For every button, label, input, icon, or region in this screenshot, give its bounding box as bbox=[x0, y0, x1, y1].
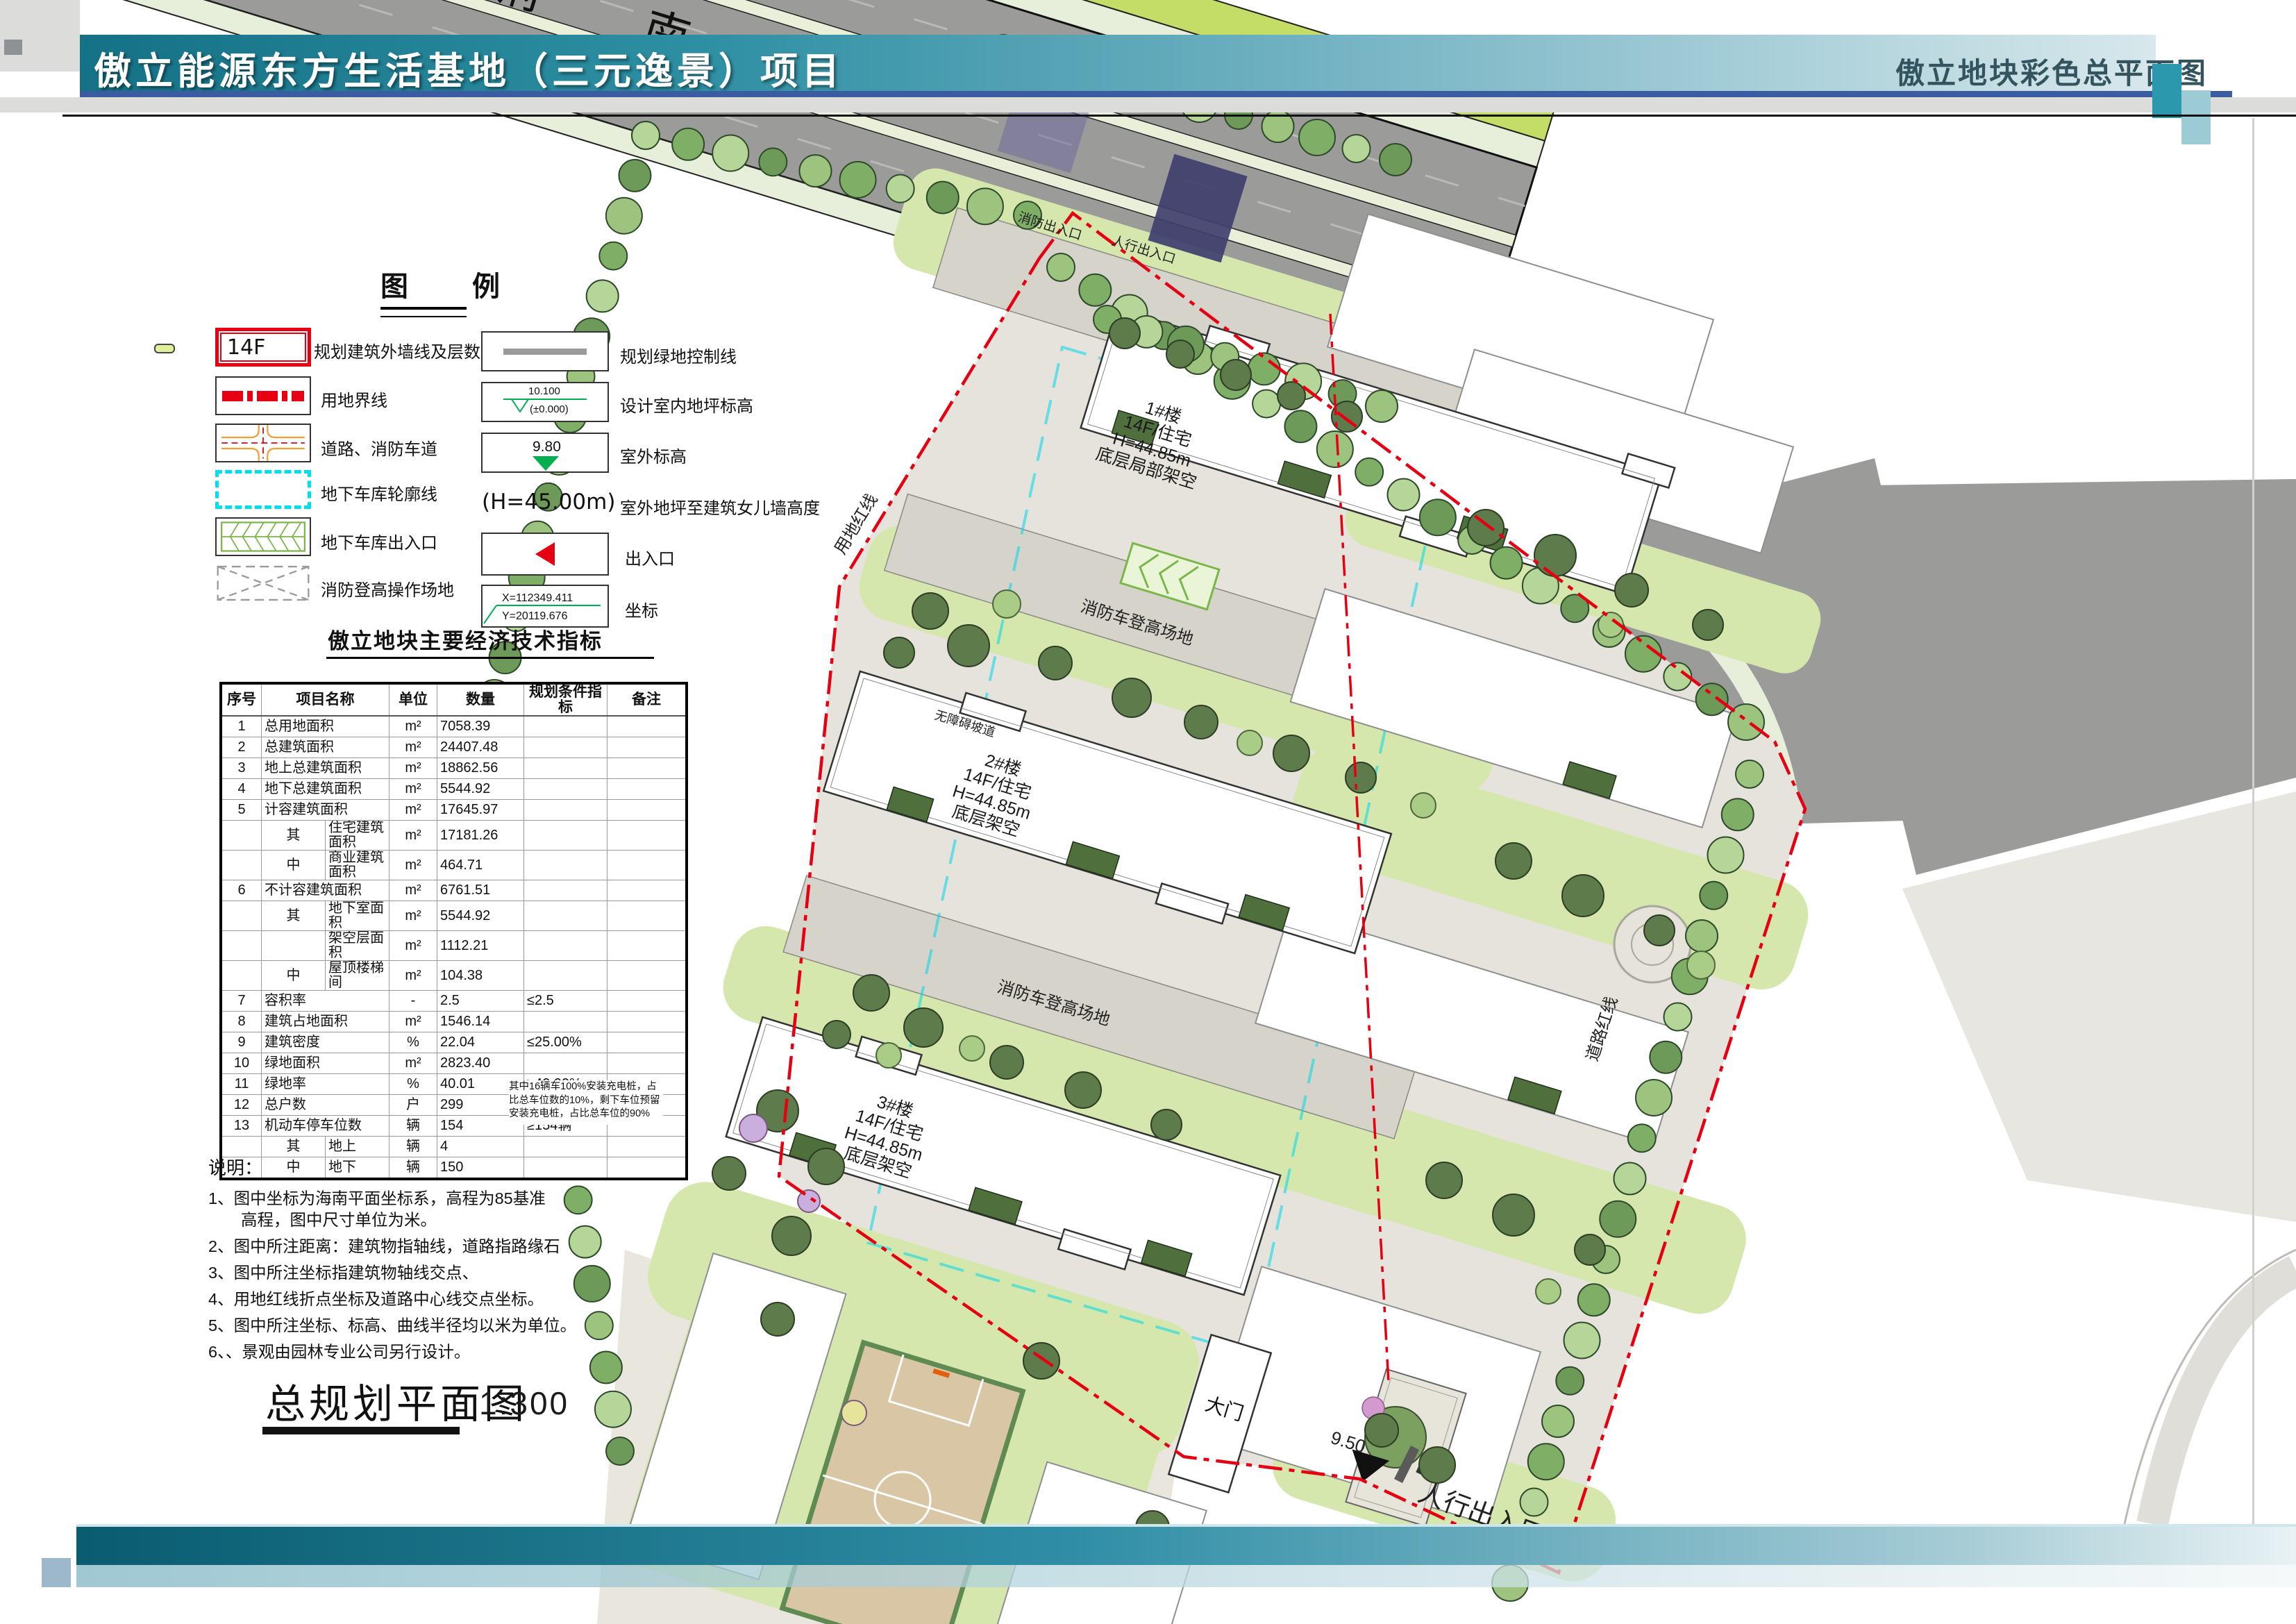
outdoor-elevation-icon: 9.80 bbox=[483, 433, 607, 472]
legend-symbol-land-boundary bbox=[215, 376, 311, 415]
legend-label: 出入口 bbox=[625, 545, 675, 569]
header-blue-line bbox=[80, 91, 2232, 97]
indicator-row: 2总建筑面积m²24407.48 bbox=[221, 737, 687, 758]
legend-symbol-road bbox=[215, 424, 311, 462]
note-item: 1、图中坐标为海南平面坐标系，高程为85基准 高程，图中尺寸单位为米。 bbox=[208, 1188, 597, 1231]
header-gray-band bbox=[0, 0, 80, 72]
note-item: 6、、景观由园林专业公司另行设计。 bbox=[208, 1341, 597, 1363]
legend-title-underline bbox=[380, 307, 467, 317]
entrance-triangle-icon bbox=[535, 542, 555, 566]
indicators-title-underline bbox=[326, 657, 654, 659]
legend-label: 地下车库轮廓线 bbox=[321, 480, 437, 505]
indicator-row: 10绿地面积m²2823.40 bbox=[221, 1053, 687, 1074]
legend-label: 消防登高操作场地 bbox=[321, 576, 454, 601]
elevation-value: (±0.000) bbox=[530, 403, 569, 415]
indicator-row: 5计容建筑面积m²17645.97 bbox=[221, 800, 687, 821]
road-cross-icon bbox=[217, 425, 310, 461]
legend-symbol-entrance bbox=[481, 533, 609, 576]
indicator-row: 7容积率-2.5≤2.5 bbox=[221, 991, 687, 1012]
indicator-row: 9建筑密度%22.04≤25.00% bbox=[221, 1032, 687, 1053]
header-accent-square-2 bbox=[2181, 90, 2211, 144]
indicator-row: 8建筑占地面积m²1546.14 bbox=[221, 1012, 687, 1032]
parapet-height-value: (H=45.00m) bbox=[482, 489, 615, 514]
green-control-swatch bbox=[503, 349, 587, 355]
indicator-row: 4地下总建筑面积m²5544.92 bbox=[221, 779, 687, 800]
header-accent-square-1 bbox=[2152, 64, 2181, 118]
elevation-value: 9.80 bbox=[533, 439, 561, 455]
col-header: 项目名称 bbox=[262, 683, 389, 716]
col-header: 序号 bbox=[221, 683, 262, 716]
legend-label: 室外地坪至建筑女儿墙高度 bbox=[620, 494, 820, 519]
corner-curve bbox=[2152, 1271, 2296, 1524]
legend-symbol-coordinate: X=112349.411 Y=20119.676 bbox=[481, 585, 609, 628]
legend-14f-text: 14F bbox=[221, 335, 265, 360]
median-dash-swatch bbox=[154, 344, 175, 353]
note-item: 2、图中所注距离：建筑物指轴线，道路指路缘石 bbox=[208, 1236, 597, 1257]
indicator-row: 其地下室面积m²5544.92 bbox=[221, 901, 687, 931]
drawing-sheet: 东府南路 bbox=[0, 0, 2296, 1624]
parking-remark: 其中16辆车100%安装充电桩，占比总车位数的10%，剩下车位预留安装充电桩，占… bbox=[509, 1080, 663, 1125]
legend-label: 规划绿地控制线 bbox=[620, 343, 737, 367]
note-item: 3、图中所注坐标指建筑物轴线交点、 bbox=[208, 1262, 597, 1284]
indicator-row: 中商业建筑面积m²464.71 bbox=[221, 851, 687, 880]
legend-title: 图 例 bbox=[380, 264, 518, 304]
plan-caption-underline bbox=[262, 1427, 460, 1434]
legend-label: 规划建筑外墙线及层数 bbox=[314, 338, 480, 362]
legend-label: 坐标 bbox=[625, 597, 658, 621]
indicator-row: 中屋顶楼梯间m²104.38 bbox=[221, 961, 687, 991]
col-header: 单位 bbox=[389, 683, 437, 716]
footer-square bbox=[42, 1558, 71, 1587]
sheet-title: 傲立能源东方生活基地（三元逸景）项目 bbox=[94, 40, 844, 95]
legend-symbol-fire-area bbox=[215, 564, 311, 603]
redline-swatch bbox=[222, 391, 304, 401]
table-header-row: 序号 项目名称 单位 数量 规划条件指标 备注 bbox=[221, 683, 687, 716]
fire-area-icon bbox=[215, 564, 311, 603]
indoor-elevation-icon: 10.100 (±0.000) bbox=[483, 383, 607, 421]
col-header: 数量 bbox=[437, 683, 524, 716]
legend-label: 室外标高 bbox=[620, 443, 687, 467]
notes-title: 说明： bbox=[208, 1154, 597, 1180]
col-header: 规划条件指标 bbox=[524, 683, 607, 716]
legend-symbol-green-control bbox=[481, 331, 609, 371]
frame-right-line bbox=[2252, 118, 2254, 1524]
header-gray-strip bbox=[0, 97, 2296, 112]
indicator-row: 1总用地面积m²7058.39 bbox=[221, 716, 687, 737]
note-item: 5、图中所注坐标、标高、曲线半径均以米为单位。 bbox=[208, 1315, 597, 1337]
footer-band-light bbox=[76, 1565, 2296, 1587]
sheet-subtitle: 傲立地块彩色总平面图 bbox=[1819, 50, 2208, 92]
legend-label: 地下车库出入口 bbox=[321, 529, 437, 553]
coordinate-icon: X=112349.411 Y=20119.676 bbox=[483, 586, 607, 626]
frame-top-line bbox=[62, 115, 2296, 117]
legend-symbol-outdoor-elevation: 9.80 bbox=[481, 433, 609, 473]
notes-block: 说明： 1、图中坐标为海南平面坐标系，高程为85基准 高程，图中尺寸单位为米。 … bbox=[208, 1154, 597, 1368]
legend-symbol-garage-entrance bbox=[215, 517, 311, 556]
plan-scale: 1:300 bbox=[479, 1384, 569, 1422]
legend-label: 用地界线 bbox=[321, 387, 387, 411]
footer-band bbox=[76, 1527, 2296, 1565]
indicator-row: 6不计容建筑面积m²6761.51 bbox=[221, 880, 687, 901]
legend-symbol-indoor-elevation: 10.100 (±0.000) bbox=[481, 382, 609, 422]
legend-symbol-garage-outline bbox=[215, 470, 311, 509]
elevation-value: 10.100 bbox=[528, 385, 560, 397]
note-item: 4、用地红线折点坐标及道路中心线交点坐标。 bbox=[208, 1289, 597, 1310]
legend-symbol-building-outline: 14F bbox=[215, 328, 311, 367]
indicators-title: 傲立地块主要经济技术指标 bbox=[328, 623, 603, 655]
coord-x: X=112349.411 bbox=[502, 592, 573, 604]
legend-label: 道路、消防车道 bbox=[321, 435, 437, 460]
indicator-row: 其住宅建筑面积m²17181.26 bbox=[221, 821, 687, 851]
indicator-row: 架空层面积m²1112.21 bbox=[221, 931, 687, 961]
garage-chevron-icon bbox=[217, 519, 310, 555]
col-header: 备注 bbox=[607, 683, 687, 716]
indicator-row: 3地上总建筑面积m²18862.56 bbox=[221, 758, 687, 779]
header-corner-square bbox=[4, 40, 22, 55]
coord-y: Y=20119.676 bbox=[502, 610, 568, 622]
legend-label: 设计室内地坪标高 bbox=[620, 392, 753, 417]
